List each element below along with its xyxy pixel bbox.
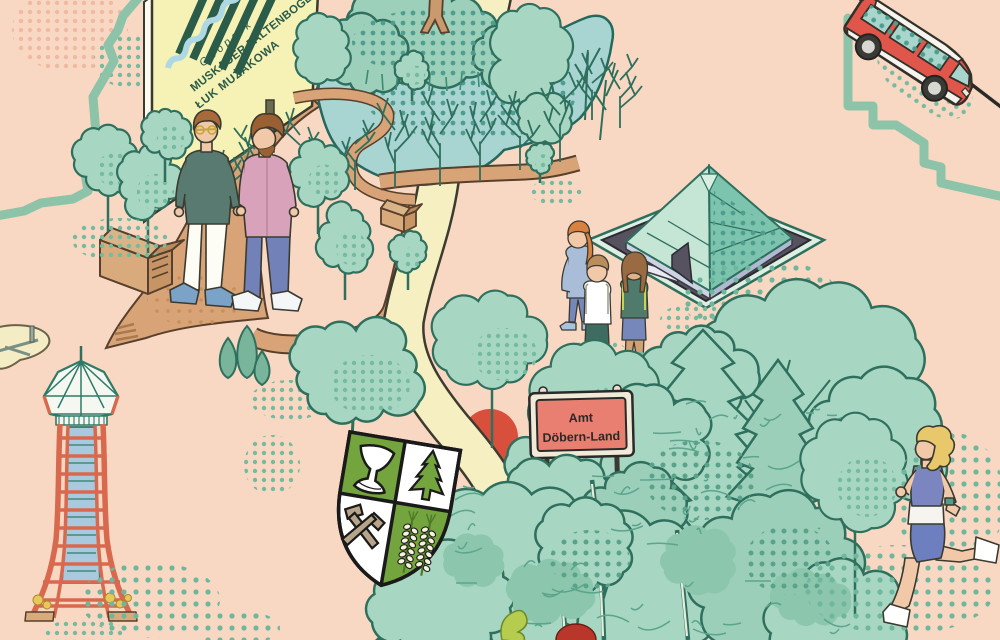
svg-text:Amt: Amt [569, 411, 594, 426]
svg-text:Döbern-Land: Döbern-Land [542, 429, 620, 445]
